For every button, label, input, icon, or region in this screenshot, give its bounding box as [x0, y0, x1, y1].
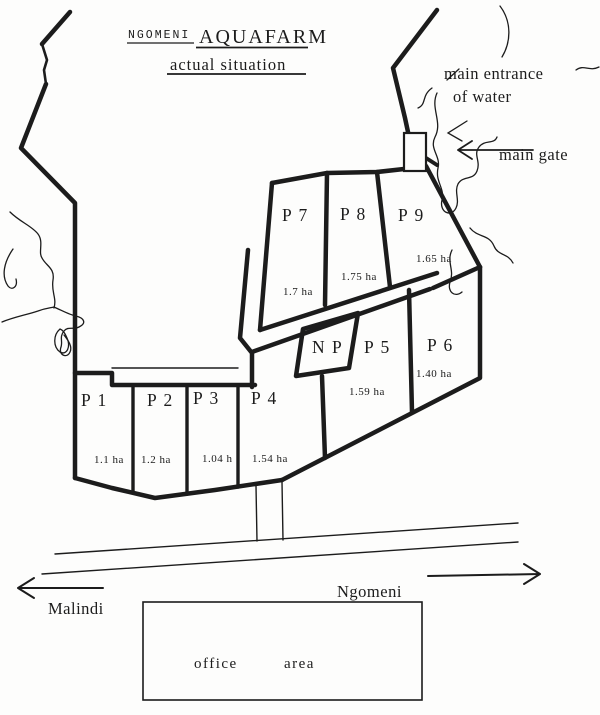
plot-p4-area: 1.54 ha	[252, 453, 288, 465]
plot-p1-area: 1.1 ha	[94, 454, 124, 466]
p5-p6-divider	[409, 290, 412, 412]
west-boundary-jag	[42, 44, 47, 84]
plot-p8-area: 1.75 ha	[341, 271, 377, 283]
plot-p5-label: P 5	[364, 337, 391, 357]
coastline-squiggles-group	[2, 6, 599, 356]
area-label: area	[284, 656, 315, 672]
plot-p4-label: P 4	[251, 388, 278, 408]
malindi-arrow-icon	[18, 578, 103, 598]
south-boundary	[75, 478, 282, 498]
plot-np-label: N P	[312, 337, 343, 357]
p7-p8-divider	[325, 173, 327, 305]
corridor-outer-boundary	[240, 250, 252, 387]
aquafarm-map-page: NGOMENI AQUAFARM actual situation main e…	[0, 0, 600, 715]
plot-p6-area: 1.40 ha	[416, 368, 452, 380]
plot-p9-area: 1.65 ha	[416, 253, 452, 265]
p9-northeast-boundary	[426, 166, 480, 267]
coastline-squiggle-west	[4, 249, 16, 288]
plot-p3-area: 1.04 h	[202, 453, 233, 465]
plot-p6-label: P 6	[427, 335, 454, 355]
coastline-creek-west	[10, 212, 55, 308]
ngomeni-arrow-icon	[428, 564, 540, 584]
gate-zigzag-line	[448, 121, 467, 141]
main-gate-label: main gate	[499, 145, 568, 164]
p7-west-edge	[260, 183, 272, 330]
entrance-pointer-tilde	[576, 67, 599, 70]
main-entrance-label-line2: of water	[453, 87, 512, 106]
main-entrance-label-line1: main entrance	[444, 64, 544, 83]
access-path-right	[282, 482, 283, 540]
road-upper-line	[55, 523, 518, 554]
road-lower-line	[42, 542, 518, 574]
west-boundary	[21, 84, 75, 478]
plot-p7-label: P 7	[282, 205, 309, 225]
road-west-label: Malindi	[48, 599, 104, 618]
gate-nub	[426, 158, 437, 165]
np-south-line	[322, 376, 325, 458]
top-edge-p7-p9	[272, 169, 404, 183]
water-squiggle-left	[418, 88, 432, 108]
plot-p9-label: P 9	[398, 205, 425, 225]
west-boundary-top	[42, 12, 70, 44]
plot-p5-area: 1.59 ha	[349, 386, 385, 398]
office-area-box	[143, 602, 422, 700]
office-label: office	[194, 656, 238, 672]
coastline-inlet-west	[2, 307, 54, 322]
map-drawing: NGOMENI AQUAFARM actual situation main e…	[0, 0, 600, 715]
plot-p3-label: P 3	[193, 388, 220, 408]
water-inlet-squiggle	[433, 93, 497, 213]
title-main: AQUAFARM	[199, 26, 328, 48]
plot-p1-label: P 1	[81, 390, 108, 410]
road-east-label: Ngomeni	[337, 582, 402, 601]
title-prefix: NGOMENI	[128, 29, 190, 42]
main-gate-structure	[404, 133, 426, 171]
thin-lines-group	[42, 368, 518, 574]
northeast-boundary	[393, 10, 437, 132]
plot-p7-area: 1.7 ha	[283, 286, 313, 298]
title-subtitle: actual situation	[170, 55, 286, 74]
plot-p8-label: P 8	[340, 204, 367, 224]
farm-boundary-group	[21, 10, 480, 498]
plot-p2-label: P 2	[147, 390, 174, 410]
water-squiggle-top	[500, 6, 509, 57]
p6-top-edge	[433, 267, 480, 288]
p8-p9-divider	[377, 172, 390, 287]
plot-p2-area: 1.2 ha	[141, 454, 171, 466]
arrows-group	[18, 141, 540, 598]
access-path-left	[256, 486, 257, 541]
strip-north-boundary	[75, 373, 255, 385]
